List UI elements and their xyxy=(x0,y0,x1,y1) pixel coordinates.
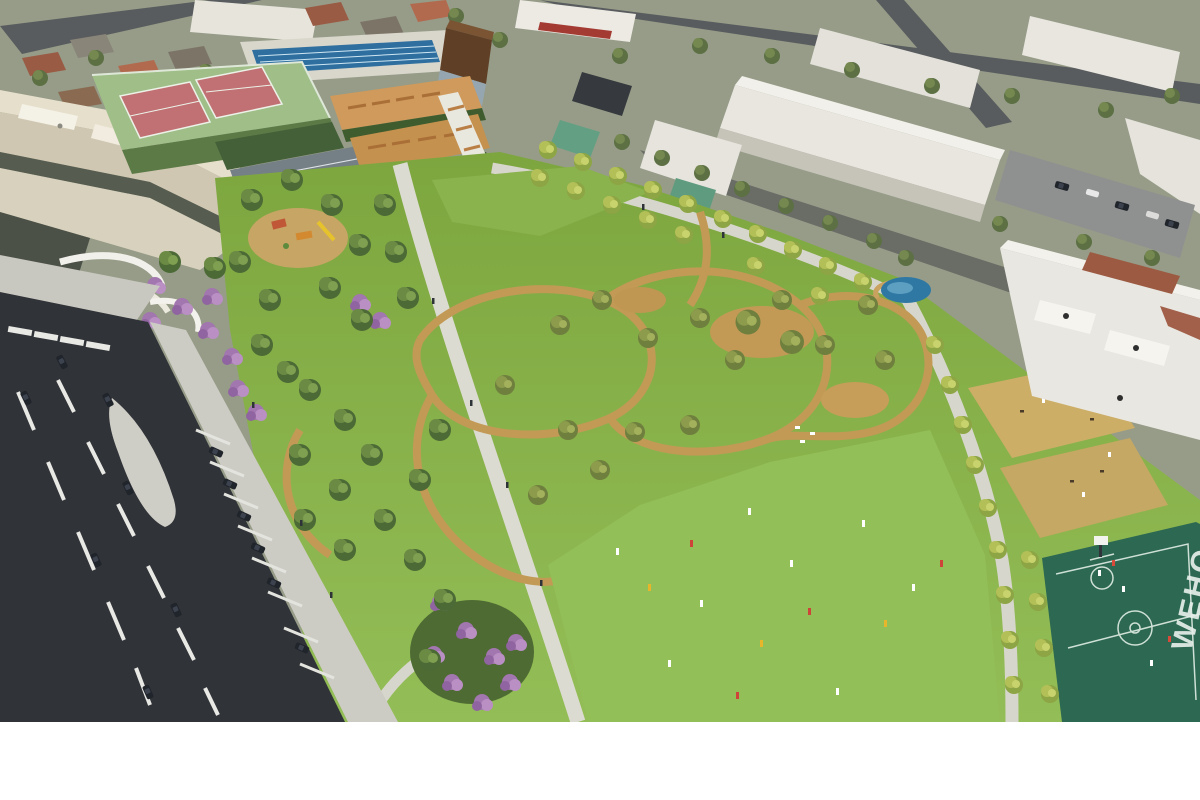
playground xyxy=(248,208,348,268)
site-aerial-rendering: WEHO xyxy=(0,0,1200,722)
presentation-board: WEHO xyxy=(0,0,1200,800)
title-block: SITE AERIAL SAN VICENTE TOWARD LIBRARY xyxy=(0,722,1200,800)
basketball-hoop xyxy=(1094,536,1108,545)
